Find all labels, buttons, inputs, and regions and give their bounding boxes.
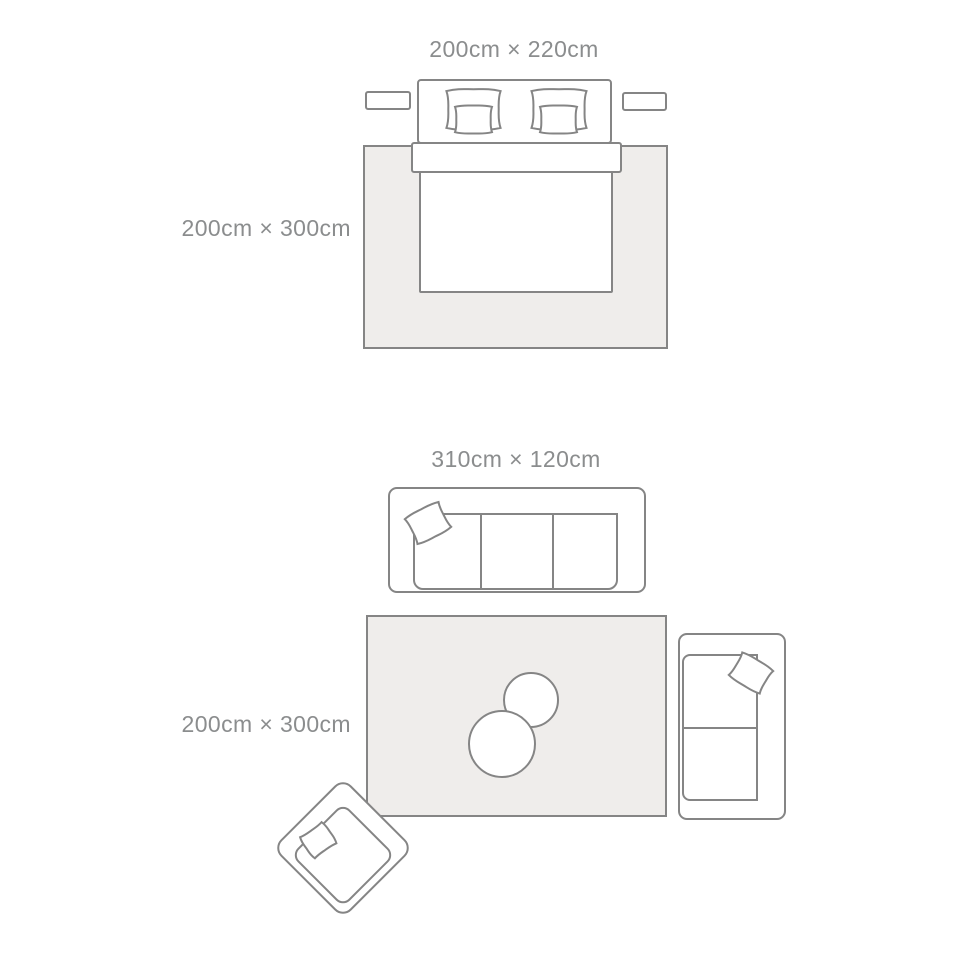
sofa-cushion-divider	[552, 515, 554, 588]
bed-pillow-left-inner	[452, 104, 495, 135]
bed-duvet	[419, 158, 613, 293]
nightstand-right	[622, 92, 667, 111]
living-room-rug-size-label: 200cm × 300cm	[151, 711, 351, 737]
bed-pillow-right-inner	[537, 104, 580, 135]
nightstand-left	[365, 91, 411, 110]
bedroom-rug-size-label: 200cm × 300cm	[151, 215, 351, 241]
sofa-size-label: 310cm × 120cm	[366, 446, 666, 472]
bed-blanket-band	[411, 142, 622, 173]
armchair-cushion-divider	[684, 727, 756, 729]
rug-size-guide-diagram: 200cm × 220cm 200cm × 300cm 310cm × 120c…	[0, 0, 962, 962]
bedroom-scene: 200cm × 220cm 200cm × 300cm	[0, 0, 962, 430]
living-room-scene: 310cm × 120cm 200cm × 300cm	[0, 430, 962, 962]
sofa-cushion-divider	[480, 515, 482, 588]
bed-size-label: 200cm × 220cm	[364, 36, 664, 62]
round-table-large	[468, 710, 536, 778]
armchair-right	[678, 633, 786, 820]
sofa	[388, 487, 646, 593]
